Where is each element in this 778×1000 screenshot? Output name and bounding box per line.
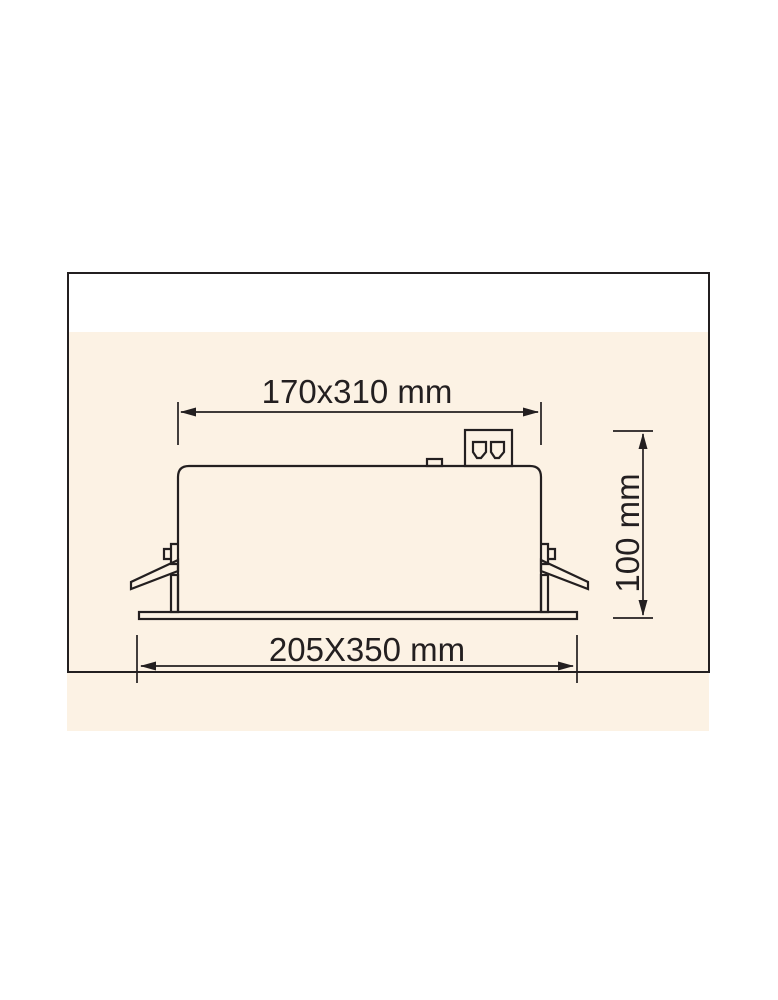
terminal-slot-right — [491, 442, 504, 458]
mounting-flange — [139, 612, 577, 619]
page: 170x310 mm 100 mm 205X350 mm — [0, 0, 778, 1000]
dimension-top: 170x310 mm — [178, 373, 541, 445]
dimension-bottom: 205X350 mm — [137, 631, 577, 683]
flange-post-left — [171, 575, 178, 612]
dimension-right: 100 mm — [609, 431, 653, 618]
dimension-right-label: 100 mm — [609, 473, 646, 592]
flange-post-right — [541, 575, 548, 612]
luminaire-dimension-drawing: 170x310 mm 100 mm 205X350 mm — [0, 0, 778, 1000]
dimension-bottom-label: 205X350 mm — [269, 631, 465, 668]
luminaire-side-view — [131, 430, 588, 619]
dimension-top-label: 170x310 mm — [262, 373, 453, 410]
top-tab — [427, 459, 442, 466]
fixture-body — [178, 466, 541, 612]
terminal-slot-left — [473, 442, 486, 458]
